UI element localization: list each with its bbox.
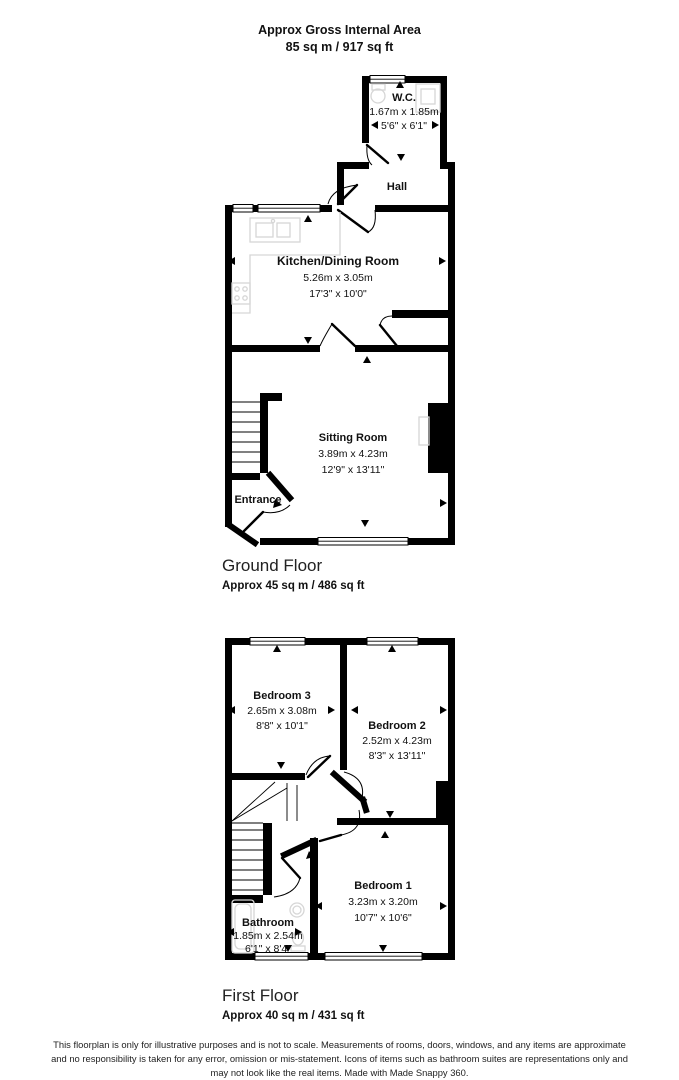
svg-text:1.67m x 1.85m: 1.67m x 1.85m [369, 106, 439, 118]
gross-internal-area-header: Approx Gross Internal Area 85 sq m / 917… [0, 22, 679, 56]
svg-text:1.85m x 2.54m: 1.85m x 2.54m [233, 930, 303, 942]
first-floor-area: Approx 40 sq m / 431 sq ft [222, 1010, 365, 1022]
bedroom1-door [320, 810, 360, 841]
first-floor-title: First Floor [222, 986, 365, 1006]
svg-text:Bedroom 3: Bedroom 3 [253, 690, 310, 702]
svg-text:2.52m x 4.23m: 2.52m x 4.23m [362, 735, 432, 747]
header-area-value: 85 sq m / 917 sq ft [0, 39, 679, 56]
svg-text:Sitting Room: Sitting Room [319, 432, 388, 444]
svg-text:5.26m x 3.05m: 5.26m x 3.05m [303, 272, 373, 284]
room-kitchen-dining: Kitchen/Dining Room 5.26m x 3.05m 17'3" … [277, 254, 399, 300]
hob-icon [232, 283, 250, 304]
room-entrance: Entrance [234, 494, 281, 506]
svg-text:5'6" x 6'1": 5'6" x 6'1" [381, 120, 427, 132]
ground-floor-plan: W.C. 1.67m x 1.85m 5'6" x 6'1" Hall Kitc… [220, 65, 460, 550]
svg-text:17'3" x 10'0": 17'3" x 10'0" [309, 288, 367, 300]
pantry-door [380, 316, 397, 346]
svg-text:6'1" x 8'4": 6'1" x 8'4" [245, 943, 291, 955]
room-bedroom1: Bedroom 1 3.23m x 3.20m 10'7" x 10'6" [348, 880, 418, 924]
svg-text:Hall: Hall [387, 181, 407, 193]
first-floor-label: First Floor Approx 40 sq m / 431 sq ft [222, 986, 365, 1022]
svg-text:Entrance: Entrance [234, 494, 281, 506]
room-sitting: Sitting Room 3.89m x 4.23m 12'9" x 13'11… [318, 432, 388, 476]
ground-floor-title: Ground Floor [222, 556, 365, 576]
disclaimer-text: This floorplan is only for illustrative … [49, 1038, 630, 1080]
ground-floor-label: Ground Floor Approx 45 sq m / 486 sq ft [222, 556, 365, 592]
svg-text:W.C.: W.C. [392, 92, 416, 104]
bedroom3-door [306, 756, 330, 777]
svg-text:Bathroom: Bathroom [242, 917, 294, 929]
room-wc: W.C. 1.67m x 1.85m 5'6" x 6'1" [369, 92, 439, 132]
svg-text:2.65m x 3.08m: 2.65m x 3.08m [247, 705, 317, 717]
pantry-wall [392, 310, 455, 318]
svg-text:8'8" x 10'1": 8'8" x 10'1" [256, 720, 308, 732]
bathroom-door [274, 851, 314, 897]
svg-text:Kitchen/Dining Room: Kitchen/Dining Room [277, 254, 399, 268]
entrance-corner-wall [229, 525, 255, 543]
svg-text:10'7" x 10'6": 10'7" x 10'6" [354, 912, 412, 924]
chimney-breast-first [436, 781, 455, 818]
room-bedroom2: Bedroom 2 2.52m x 4.23m 8'3" x 13'11" [362, 720, 432, 762]
floorplan-page: Approx Gross Internal Area 85 sq m / 917… [0, 0, 679, 1080]
svg-text:Bedroom 1: Bedroom 1 [354, 880, 411, 892]
ground-floor-area: Approx 45 sq m / 486 sq ft [222, 580, 365, 592]
first-floor-plan: Bedroom 3 2.65m x 3.08m 8'8" x 10'1" Bed… [220, 633, 460, 965]
first-interior-walls [225, 638, 455, 960]
wc-door [367, 145, 388, 165]
svg-text:3.89m x 4.23m: 3.89m x 4.23m [318, 448, 388, 460]
svg-text:3.23m x 3.20m: 3.23m x 3.20m [348, 896, 418, 908]
ground-floor-stairs [227, 393, 282, 480]
room-hall: Hall [387, 181, 407, 193]
svg-text:12'9" x 13'11": 12'9" x 13'11" [322, 464, 385, 476]
header-title: Approx Gross Internal Area [0, 22, 679, 39]
svg-text:Bedroom 2: Bedroom 2 [368, 720, 425, 732]
hall-kitchen-door [328, 185, 375, 232]
svg-text:8'3" x 13'11": 8'3" x 13'11" [369, 750, 426, 762]
kitchen-sitting-door [320, 324, 355, 346]
room-bedroom3: Bedroom 3 2.65m x 3.08m 8'8" x 10'1" [247, 690, 317, 732]
chimney-breast [419, 403, 448, 473]
